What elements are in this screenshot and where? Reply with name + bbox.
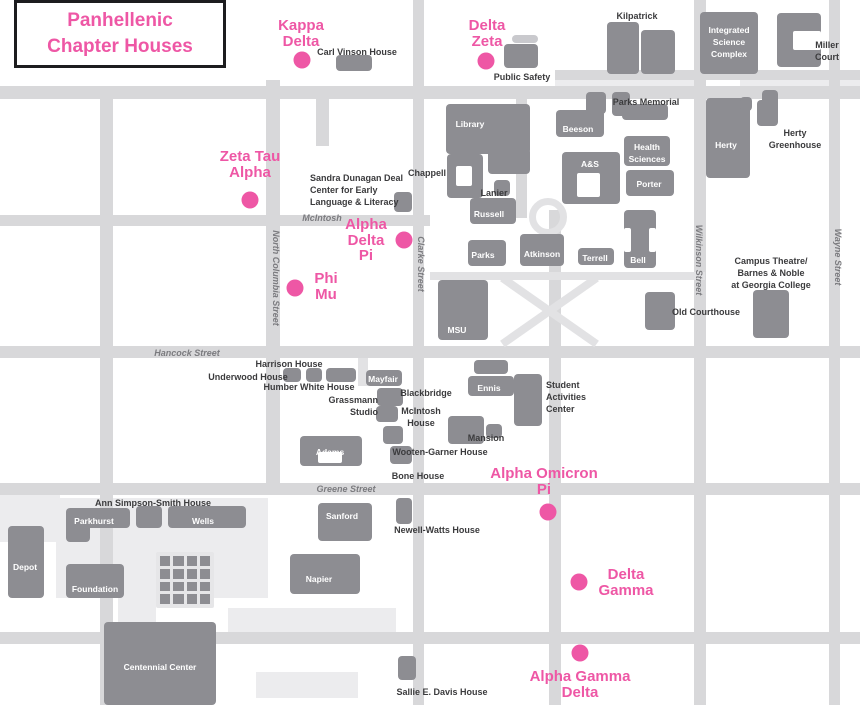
building-name-russell: Russell	[474, 208, 504, 220]
chapter-dot-delta-gamma	[571, 574, 588, 591]
building	[376, 406, 398, 422]
building-label-chappell: Chappell	[408, 167, 446, 179]
street-segment	[413, 0, 424, 705]
building-label-old-courthouse: Old Courthouse	[672, 306, 740, 318]
building-courtyard	[624, 228, 631, 252]
building-name-depot: Depot	[13, 561, 37, 573]
building	[136, 506, 162, 528]
building-name-bell: Bell	[630, 254, 646, 266]
building	[512, 35, 538, 43]
chapter-dot-alpha-omicron-pi	[540, 504, 557, 521]
grid-building-cell	[173, 569, 183, 579]
building-label-blackbridge: Blackbridge	[400, 387, 452, 399]
building-label-carl-vinson-house: Carl Vinson House	[317, 46, 397, 58]
chapter-label-zeta-tau-alpha: Zeta Tau Alpha	[220, 149, 281, 180]
building-courtyard	[649, 228, 656, 252]
building-name-ennis: Ennis	[477, 382, 500, 394]
building-label-herty-greenhouse: Herty Greenhouse	[763, 127, 828, 151]
grid-building-cell	[160, 594, 170, 604]
building-label-parks-memorial: Parks Memorial	[613, 96, 680, 108]
building	[607, 22, 639, 74]
street-label-greene-street: Greene Street	[316, 484, 375, 494]
grid-building-cell	[173, 582, 183, 592]
building-name-wells: Wells	[192, 515, 214, 527]
building-name-library: Library	[456, 118, 485, 130]
building-label-miller-court: Miller Court	[811, 39, 844, 63]
building-name-parks: Parks	[471, 249, 494, 261]
building-label-student: Student Activities Center	[546, 379, 586, 415]
building-name-health: Health Sciences	[629, 141, 666, 165]
street-segment	[829, 0, 840, 705]
grid-building-cell	[160, 556, 170, 566]
grid-building-cell	[173, 594, 183, 604]
building	[326, 368, 356, 382]
grid-building-cell	[187, 582, 197, 592]
chapter-label-delta-gamma: Delta Gamma	[598, 567, 653, 598]
building-label-sallie-e-davis-house: Sallie E. Davis House	[396, 686, 487, 698]
street-label-wayne-street: Wayne Street	[833, 229, 843, 286]
walk-path	[430, 272, 705, 280]
street-label-wilkinson-street: Wilkinson Street	[694, 225, 704, 295]
grid-building-cell	[200, 582, 210, 592]
building-label-lanier: Lanier	[480, 187, 507, 199]
chapter-dot-zeta-tau-alpha	[242, 192, 259, 209]
street-segment	[694, 0, 706, 705]
grid-building-cell	[187, 556, 197, 566]
building-label-mansion: Mansion	[468, 432, 505, 444]
plaza-area	[256, 672, 358, 698]
building-label-kilpatrick: Kilpatrick	[616, 10, 657, 22]
building-name-porter: Porter	[636, 178, 661, 190]
building-name-herty: Herty	[715, 139, 737, 151]
grid-building-cell	[160, 569, 170, 579]
map-title-line1: Panhellenic	[67, 8, 173, 34]
grid-building-cell	[200, 594, 210, 604]
building-name-a-s: A&S	[581, 158, 599, 170]
building-name-foundation: Foundation	[72, 583, 118, 595]
building-courtyard	[577, 173, 600, 197]
building	[306, 368, 322, 382]
building	[762, 90, 778, 112]
chapter-label-phi-mu: Phi Mu	[314, 271, 337, 302]
building	[488, 148, 530, 174]
building-label-sandra-dunagan-deal: Sandra Dunagan Deal Center for Early Lan…	[310, 172, 403, 208]
roundabout-path	[529, 198, 567, 236]
chapter-label-alpha-omicron-pi: Alpha Omicron Pi	[490, 466, 598, 497]
street-segment	[0, 483, 860, 495]
building	[377, 388, 403, 406]
street-label-clarke-street: Clarke Street	[416, 236, 426, 292]
building-name-beeson: Beeson	[563, 123, 594, 135]
building-label-humber-white-house: Humber White House	[263, 381, 354, 393]
building-name-napier: Napier	[306, 573, 332, 585]
building-label-newell-watts-house: Newell-Watts House	[394, 524, 480, 536]
building	[383, 426, 403, 444]
building	[474, 360, 508, 374]
building	[318, 503, 372, 541]
map-title: Panhellenic Chapter Houses	[14, 0, 226, 68]
building-label-grassmann: Grassmann Studio	[328, 394, 378, 418]
building-courtyard	[456, 166, 472, 186]
building	[504, 44, 538, 68]
building-label-campus-theatre-: Campus Theatre/ Barnes & Noble at Georgi…	[731, 255, 811, 291]
building-name-adams: Adams	[316, 446, 344, 458]
campus-map: Panhellenic Chapter Houses Carl Vinson H…	[0, 0, 860, 705]
building-label-bone-house: Bone House	[392, 470, 445, 482]
building-name-sanford: Sanford	[326, 510, 358, 522]
building	[645, 292, 675, 330]
building-name-integrated: Integrated Science Complex	[708, 24, 749, 60]
grid-building-cell	[187, 594, 197, 604]
grid-building-cell	[187, 569, 197, 579]
building	[514, 374, 542, 426]
grid-building	[156, 552, 214, 608]
street-segment	[100, 86, 113, 705]
chapter-dot-kappa-delta	[294, 52, 311, 69]
chapter-label-alpha-gamma-delta: Alpha Gamma Delta	[530, 669, 631, 700]
chapter-dot-alpha-delta-pi	[396, 232, 413, 249]
chapter-dot-delta-zeta	[478, 53, 495, 70]
building-label-ann-simpson-smith-house: Ann Simpson-Smith House	[95, 497, 211, 509]
street-segment	[0, 346, 860, 358]
building-name-msu: MSU	[448, 324, 467, 336]
chapter-label-delta-zeta: Delta Zeta	[469, 18, 506, 49]
street-label-north-columbia-street: North Columbia Street	[271, 230, 281, 326]
building-label-harrison-house: Harrison House	[255, 358, 322, 370]
grid-building-cell	[173, 556, 183, 566]
street-segment	[549, 210, 561, 705]
building-name-mayfair: Mayfair	[368, 373, 398, 385]
chapter-dot-phi-mu	[287, 280, 304, 297]
building-name-centennial-center: Centennial Center	[124, 661, 197, 673]
map-title-line2: Chapter Houses	[47, 34, 193, 60]
building	[641, 30, 675, 74]
street-segment	[316, 86, 329, 146]
building	[753, 290, 789, 338]
building-name-terrell: Terrell	[582, 252, 607, 264]
building	[398, 656, 416, 680]
building-name-parkhurst: Parkhurst	[74, 515, 114, 527]
street-label-hancock-street: Hancock Street	[154, 348, 220, 358]
building-label-public-safety: Public Safety	[494, 71, 551, 83]
grid-building-cell	[160, 582, 170, 592]
grid-building-cell	[200, 556, 210, 566]
street-label-mcintosh: McIntosh	[302, 213, 342, 223]
building-label-wooten-garner-house: Wooten-Garner House	[392, 446, 487, 458]
building-name-atkinson: Atkinson	[524, 248, 560, 260]
chapter-label-alpha-delta-pi: Alpha Delta Pi	[345, 217, 387, 264]
building	[396, 498, 412, 524]
grid-building-cell	[200, 569, 210, 579]
chapter-label-kappa-delta: Kappa Delta	[278, 18, 324, 49]
building	[740, 97, 752, 111]
building-label-mcintosh: McIntosh House	[401, 405, 441, 429]
chapter-dot-alpha-gamma-delta	[572, 645, 589, 662]
